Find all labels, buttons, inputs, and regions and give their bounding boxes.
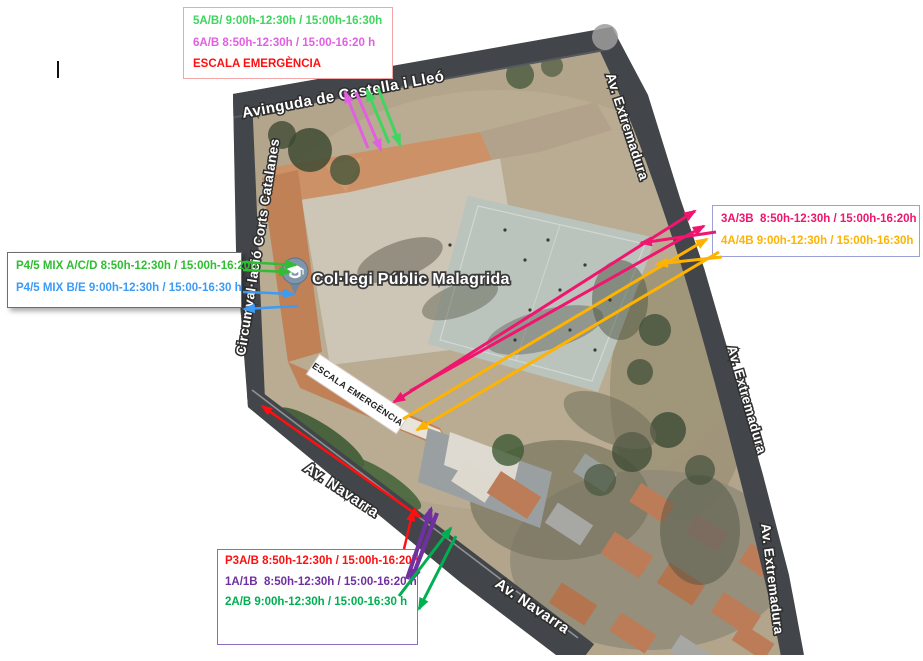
arrow-3a3b-2 <box>410 226 704 391</box>
legend-line-5ab: 5A/B/ 9:00h-12:30h / 15:00h-16:30h <box>193 16 383 28</box>
arrow-4a4b-2 <box>417 252 719 430</box>
legend-line-2ab: 2A/B 9:00h-12:30h / 15:00-16:30 h <box>225 597 410 609</box>
legend-line-p45-be: P4/5 MIX B/E 9:00h-12:30h / 15:00-16:30 … <box>16 283 233 295</box>
street-label-extremadura-top: Av. Extremadura <box>603 71 652 182</box>
street-label-navarra-left: Av. Navarra <box>301 459 382 521</box>
arrow-3a3b-long <box>394 211 695 402</box>
arrow-overlay <box>0 0 923 661</box>
road-circumvallacio <box>238 85 252 412</box>
legend-line-p45-acd: P4/5 MIX A/C/D 8:50h-12:30h / 15:00h-16:… <box>16 261 233 273</box>
legend-line-escala: ESCALA EMERGÈNCIA <box>193 59 383 71</box>
legend-line-6ab: 6A/B 8:50h-12:30h / 15:00-16:20 h <box>193 38 383 50</box>
legend-box-left: P4/5 MIX A/C/D 8:50h-12:30h / 15:00h-16:… <box>7 252 242 308</box>
satellite-map: Avinguda de Castella i Lleó Av. Extremad… <box>0 0 923 661</box>
legend-line-1a1b: 1A/1B 8:50h-12:30h / 15:00-16:20 h <box>225 577 410 589</box>
legend-line-3a3b: 3A/3B 8:50h-12:30h / 15:00h-16:20h <box>721 214 911 226</box>
gray-dot-artifact <box>592 24 618 50</box>
emergency-sign: ESCALA EMERGÈNCIA <box>306 354 409 434</box>
school-pin: Col·legi Públic Malagrida <box>282 258 510 294</box>
svg-text:ESCALA EMERGÈNCIA: ESCALA EMERGÈNCIA <box>310 361 405 428</box>
arrow-5ab-in <box>378 88 400 145</box>
arrow-p45be-in <box>243 292 294 294</box>
people-dots <box>448 228 611 351</box>
street-label-circumvallacio: Circumval·lació Corts Catalanes <box>233 137 282 356</box>
arrow-group-right-entrance <box>394 211 722 430</box>
street-label-extremadura-mid: Av. Extremadura <box>724 344 769 456</box>
legend-box-top: 5A/B/ 9:00h-12:30h / 15:00h-16:30h 6A/B … <box>183 7 393 79</box>
legend-box-right: 3A/3B 8:50h-12:30h / 15:00h-16:20h 4A/4B… <box>712 205 920 257</box>
arrow-4a4b-long <box>403 239 707 419</box>
legend-line-p3ab: P3A/B 8:50h-12:30h / 15:00h-16:20h <box>225 556 410 568</box>
arrow-p45be-out <box>244 306 298 309</box>
street-label-extremadura-bottom: Av. Extremadura <box>758 523 787 636</box>
legend-box-bottom: P3A/B 8:50h-12:30h / 15:00h-16:20h 1A/1B… <box>217 549 418 645</box>
residential-houses <box>451 453 817 661</box>
arrow-6ab-out <box>345 92 368 148</box>
legend-line-4a4b: 4A/4B 9:00h-12:30h / 15:00h-16:30h <box>721 236 911 248</box>
arrow-4a4b-return <box>657 257 722 264</box>
arrow-group-top-entrance <box>345 88 400 150</box>
street-label-navarra-bottom: Av. Navarra <box>492 575 573 637</box>
vegetation <box>268 55 740 585</box>
arrow-5ab-out <box>367 90 389 143</box>
place-label: Col·legi Públic Malagrida <box>312 271 510 288</box>
arrow-p3ab-in <box>404 511 413 549</box>
arrow-2ab-out <box>419 536 456 609</box>
annotated-school-map: Avinguda de Castella i Lleó Av. Extremad… <box>0 0 923 661</box>
arrow-6ab-in <box>356 92 381 150</box>
text-cursor-artifact <box>57 61 59 78</box>
arrow-3a3b-return <box>641 232 716 243</box>
arrow-p3ab-street <box>262 406 420 517</box>
road-extremadura <box>610 24 802 655</box>
graduation-cap-pin-icon <box>282 258 308 294</box>
